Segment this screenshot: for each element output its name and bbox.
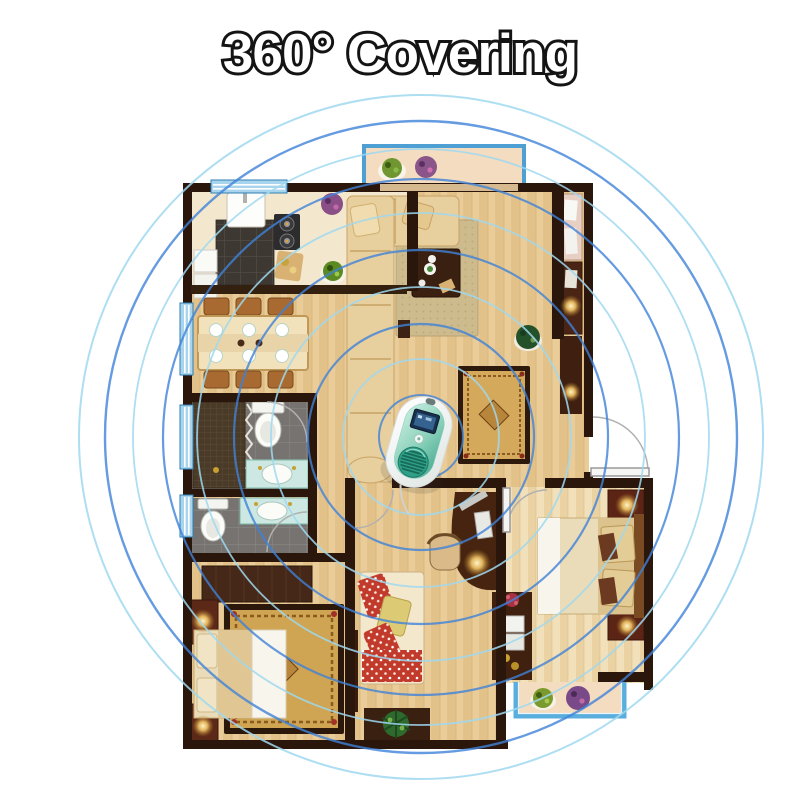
purple-plant [321, 193, 343, 215]
entry-door-arc [593, 417, 648, 472]
drain [213, 467, 219, 473]
lamp-glow [616, 615, 638, 637]
lamp-glow [191, 609, 215, 633]
purple-plant [415, 156, 437, 178]
bed [538, 514, 644, 618]
lamp-glow [560, 295, 582, 317]
balcony-bottom [516, 682, 624, 716]
pillow [197, 678, 217, 712]
dining-chair [236, 371, 261, 388]
appliance [194, 250, 217, 272]
room-bathroom-top [192, 402, 308, 489]
window [180, 495, 193, 537]
floor-plant [516, 325, 540, 349]
floorplan-canvas: 360° Covering [0, 0, 800, 800]
lamp-glow [192, 715, 214, 737]
room-bathroom-bottom [192, 498, 308, 553]
sofa [347, 196, 394, 482]
entry-door-leaf [591, 468, 649, 476]
toilet-tank [198, 499, 228, 509]
dining-chair [204, 298, 229, 315]
product-coverage-illustration: 360° Covering [0, 0, 800, 800]
faucet [243, 193, 247, 203]
page-title: 360° Covering [223, 22, 577, 84]
desk-chair [430, 534, 460, 570]
basin [257, 502, 287, 520]
side-table [398, 320, 410, 338]
window [180, 405, 193, 469]
room-dining [198, 298, 308, 388]
dining-chair [204, 371, 229, 388]
lamp-glow [463, 549, 491, 577]
lamp-glow [615, 493, 639, 517]
hall-cabinet [560, 336, 582, 414]
headboard [634, 514, 644, 618]
green-plant [382, 158, 402, 178]
